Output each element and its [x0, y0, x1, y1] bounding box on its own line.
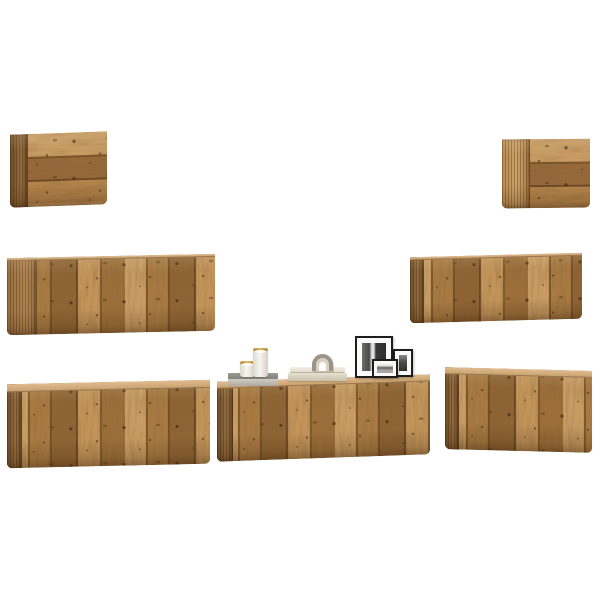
tv-cabinet-bottom-center	[217, 374, 430, 461]
framed-photo-medium	[399, 355, 407, 371]
product-image-wall-tv-cabinet-set	[0, 0, 600, 600]
cabinet-side-panel	[7, 384, 22, 468]
wall-cabinet-mid-left	[7, 254, 215, 335]
candle-tall	[253, 348, 268, 377]
book-bottom	[288, 373, 347, 381]
tv-cabinet-bottom-left	[7, 380, 210, 469]
magazine-bottom	[228, 379, 278, 386]
picture-frame-small	[372, 359, 398, 378]
candle-wax-top	[242, 363, 253, 366]
wall-cabinet-top-right	[502, 139, 590, 209]
arch-ornament	[312, 354, 333, 371]
wall-cabinet-mid-right	[410, 253, 582, 324]
candle-wax-top	[255, 350, 266, 353]
framed-photo-small	[377, 364, 393, 373]
cabinet-side-panel	[10, 134, 28, 208]
wood-texture	[7, 254, 215, 335]
wall-cabinet-top-left	[10, 131, 107, 207]
cabinet-side-panel	[7, 258, 37, 336]
wood-texture	[445, 367, 592, 453]
wood-texture	[7, 380, 210, 469]
tv-cabinet-bottom-right	[445, 367, 592, 453]
cabinet-side-panel	[217, 381, 233, 462]
cabinet-side-panel	[502, 139, 530, 208]
cabinet-side-panel	[410, 257, 424, 323]
cabinet-side-panel	[445, 367, 459, 449]
arch-opening	[319, 362, 326, 371]
wood-texture	[410, 253, 582, 324]
